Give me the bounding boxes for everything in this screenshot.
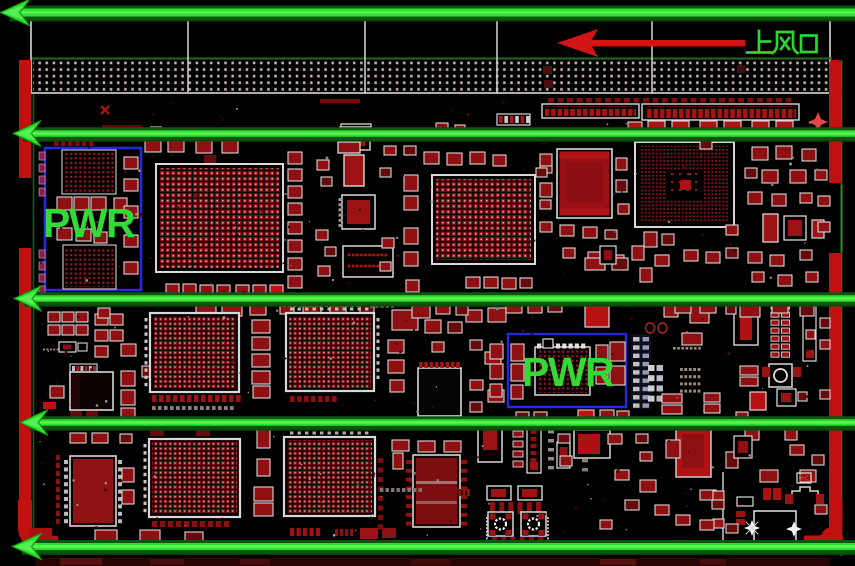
svg-text:PWR: PWR [43,200,135,246]
svg-text:PWR: PWR [522,349,614,395]
